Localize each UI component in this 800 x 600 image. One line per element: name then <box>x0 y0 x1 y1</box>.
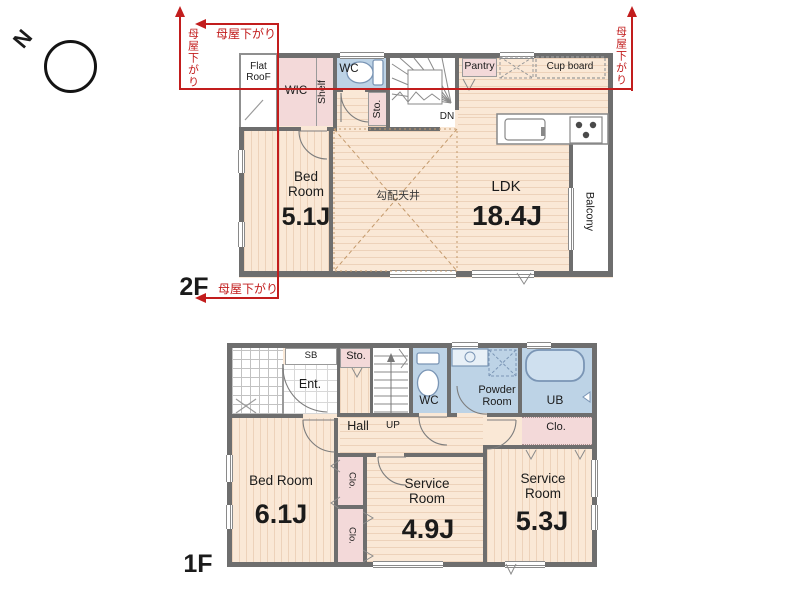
roof-line <box>631 16 633 91</box>
closet-ub-label: Clo. <box>540 421 572 434</box>
pantry-label: Pantry <box>461 60 498 74</box>
arrow-left-icon <box>195 293 206 303</box>
plan-linework <box>0 0 800 600</box>
powder-label: Powder Room <box>469 384 525 410</box>
bedroom1-size: 6.1J <box>244 499 318 531</box>
washbasin-icon <box>452 349 488 366</box>
storage1-label: Sto. <box>340 350 372 364</box>
roof-line <box>277 24 279 298</box>
balcony-label: Balcony <box>583 180 596 244</box>
floor1-label: 1F <box>176 549 220 579</box>
shelf-label: Shelf <box>317 72 329 112</box>
bedroom2-size: 5.1J <box>273 202 339 232</box>
roof-lowered-note-top: 母屋下がり <box>210 27 282 41</box>
down-label: DN <box>434 111 460 123</box>
roof-line <box>205 297 279 299</box>
kitchen-storage-x <box>500 57 533 78</box>
shoebox-label: SB <box>298 350 324 362</box>
shower-x <box>489 350 516 376</box>
floor-plan-page: Flat RooF WIC Shelf WC Sto. DN Pantry Cu… <box>0 0 800 600</box>
bathtub-icon <box>526 350 584 381</box>
kitchen-counter <box>497 114 608 144</box>
roof-line <box>179 16 181 90</box>
hall-label: Hall <box>340 420 376 434</box>
door-arcs-2f <box>299 93 368 159</box>
up-label: UP <box>382 420 404 432</box>
service1-size: 4.9J <box>391 514 465 546</box>
faucet <box>541 127 545 136</box>
closet-lower-label: Clo. <box>346 519 357 553</box>
ldk-name: LDK <box>486 178 526 196</box>
storage2-label: Sto. <box>372 91 384 127</box>
service1-name: Service Room <box>389 477 465 507</box>
service2-size: 5.3J <box>505 506 579 538</box>
sink <box>505 119 545 140</box>
arrow-up-icon <box>175 6 185 17</box>
bath-label: UB <box>543 393 567 407</box>
entrance-label: Ent. <box>288 378 332 392</box>
wc1-label: WC <box>417 394 441 408</box>
wic-label: WIC <box>278 84 314 98</box>
sloped-ceiling-label: 勾配天井 <box>369 190 427 204</box>
service2-name: Service Room <box>505 472 581 502</box>
toilet1-icon <box>417 353 439 396</box>
roof-lowered-note-bottom: 母屋下がり <box>212 282 284 296</box>
arrow-up-icon <box>627 6 637 17</box>
stove <box>570 117 602 143</box>
roof-line <box>205 23 279 25</box>
bedroom2-name: Bed Room <box>275 169 337 201</box>
roof-lowered-note-left: 母屋下がり <box>184 26 199 90</box>
roof-lowered-note-right: 母屋下がり <box>612 24 627 88</box>
flat-roof-label: Flat RooF <box>240 60 277 86</box>
roof-line <box>179 88 633 90</box>
compass-icon <box>44 40 97 93</box>
cupboard-label: Cup board <box>538 60 602 74</box>
closet-upper-label: Clo. <box>346 464 357 498</box>
bedroom1-name: Bed Room <box>246 466 316 496</box>
wc2-label: WC <box>336 62 362 76</box>
ldk-size: 18.4J <box>470 200 544 232</box>
